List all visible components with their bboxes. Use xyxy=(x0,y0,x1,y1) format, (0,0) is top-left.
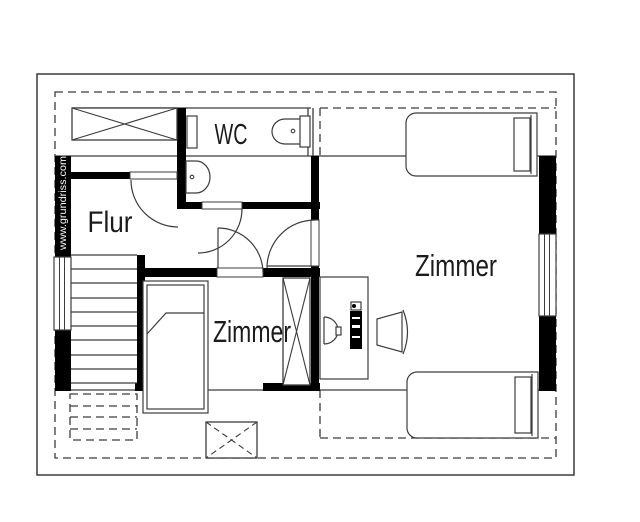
wc-upper-door-leaf xyxy=(187,116,197,148)
threshold-zimmer-small-door xyxy=(217,268,263,277)
threshold-flur-door xyxy=(130,172,177,179)
sink xyxy=(186,161,210,193)
bed-large-top-pillow xyxy=(514,118,530,171)
room-label-zimmer-small: Zimmer xyxy=(213,314,291,349)
chair-seat xyxy=(377,312,402,352)
toilet-cistern xyxy=(300,116,310,147)
keyboard-notch-1 xyxy=(352,317,360,319)
wall-zimmer-small-top-right xyxy=(263,268,320,277)
threshold-wc-door xyxy=(202,202,242,209)
door-zimmer-small-arc xyxy=(218,228,263,273)
wall-zimmer-large-left-lower xyxy=(311,266,319,391)
bed-large-bottom-pillow xyxy=(515,377,531,433)
wall-zimmer-large-left-upper xyxy=(311,156,319,220)
keyboard-notch-3 xyxy=(352,336,360,338)
floor-plan-canvas: WCFlurZimmerZimmerwww.grundriss.com xyxy=(0,0,640,522)
wall-bottom-seg-1 xyxy=(55,383,71,391)
window-right xyxy=(539,234,556,316)
bed-small xyxy=(143,281,208,413)
floor-plan-svg: WCFlurZimmerZimmerwww.grundriss.com xyxy=(0,0,640,522)
chair-back xyxy=(403,310,408,354)
room-label-zimmer-large: Zimmer xyxy=(415,248,497,283)
room-label-flur: Flur xyxy=(88,206,133,239)
mouse-dot xyxy=(352,304,356,308)
wall-right-lower xyxy=(539,315,556,391)
toilet-bowl xyxy=(272,119,302,144)
wall-wc-bottom-right xyxy=(242,202,320,209)
door-zimmer-large-arc xyxy=(267,220,315,268)
wall-right-upper xyxy=(539,156,556,235)
wall-wc-bottom-left xyxy=(177,202,202,209)
keyboard-notch-2 xyxy=(352,325,360,328)
threshold-zimmer-large-door xyxy=(311,220,319,266)
monitor-stand xyxy=(336,327,341,335)
window-left xyxy=(54,257,71,330)
wall-flur-top xyxy=(66,172,130,179)
wall-zimmer-small-top-left xyxy=(137,268,217,277)
pc-keyboard xyxy=(350,311,362,349)
wall-left-lower xyxy=(55,330,71,391)
wall-wc-left xyxy=(177,108,186,209)
watermark-text: www.grundriss.com xyxy=(57,156,69,251)
door-flur-arc xyxy=(131,180,178,227)
room-label-wc: WC xyxy=(215,119,248,151)
